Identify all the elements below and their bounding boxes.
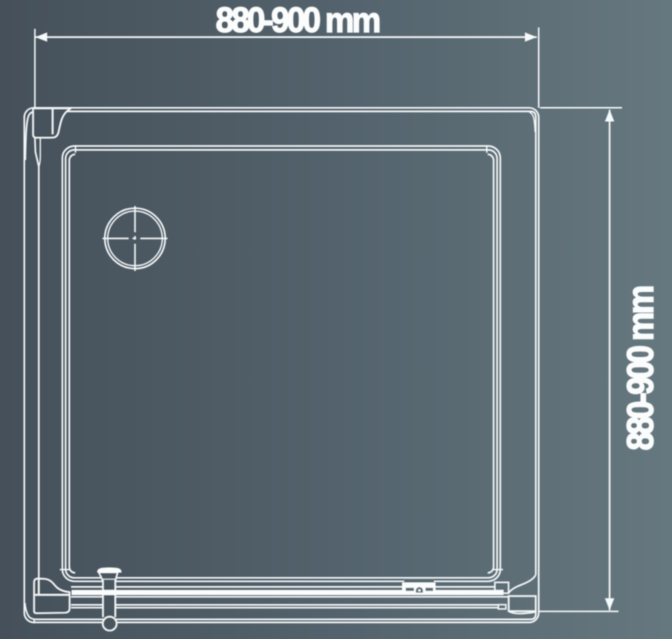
- svg-text:880-900 mm: 880-900 mm: [216, 1, 380, 40]
- svg-text:880-900 mm: 880-900 mm: [620, 286, 661, 450]
